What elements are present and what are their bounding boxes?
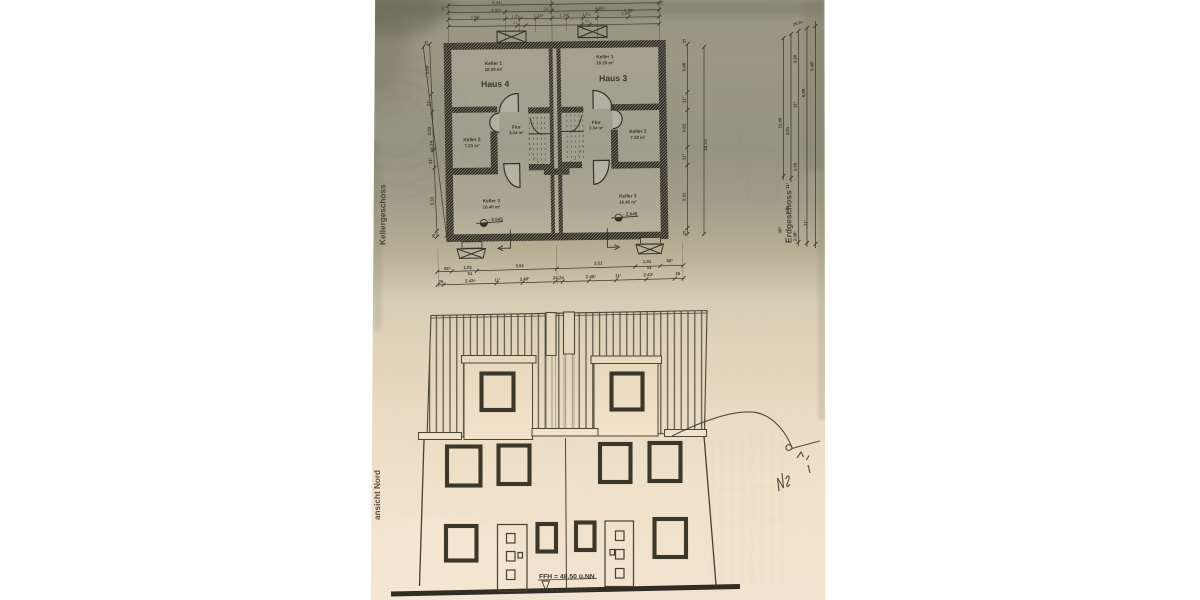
svg-text:11¹: 11¹: [792, 101, 797, 108]
svg-text:18.28 m²: 18.28 m²: [485, 67, 503, 72]
svg-text:3.31: 3.31: [429, 196, 434, 206]
svg-text:11¹: 11¹: [428, 157, 433, 164]
svg-text:Flur: Flur: [592, 120, 601, 125]
svg-text:3.08⁵: 3.08⁵: [470, 15, 480, 20]
svg-text:7.23 m²: 7.23 m²: [464, 143, 480, 148]
svg-text:3.51: 3.51: [594, 261, 603, 266]
svg-text:3.31: 3.31: [681, 192, 686, 201]
svg-text:61: 61: [513, 21, 517, 25]
svg-text:24,24: 24,24: [543, 6, 555, 11]
svg-text:1.26: 1.26: [792, 162, 797, 171]
svg-text:2.40⁵: 2.40⁵: [586, 274, 597, 279]
svg-text:3.34 m²: 3.34 m²: [509, 130, 524, 135]
svg-text:11¹: 11¹: [681, 96, 686, 103]
svg-text:3.01: 3.01: [785, 126, 790, 135]
svg-text:51: 51: [468, 271, 473, 276]
svg-text:11¹: 11¹: [803, 219, 808, 226]
svg-text:2.43⁵: 2.43⁵: [465, 278, 476, 283]
svg-text:2.40¹: 2.40¹: [520, 276, 531, 281]
svg-text:25: 25: [439, 279, 445, 284]
svg-text:5: 5: [550, 0, 552, 4]
svg-text:25: 25: [682, 231, 686, 235]
svg-text:11¹: 11¹: [681, 153, 686, 160]
svg-text:Erdgeschoss: Erdgeschoss: [784, 190, 794, 243]
svg-text:3.26: 3.26: [792, 54, 797, 63]
svg-text:Haus 4: Haus 4: [481, 79, 510, 89]
svg-text:11¹: 11¹: [615, 273, 622, 278]
svg-text:24,24: 24,24: [553, 275, 565, 280]
svg-text:92⁵: 92⁵: [444, 266, 451, 271]
svg-text:11¹: 11¹: [785, 182, 790, 189]
svg-text:7.23 m²: 7.23 m²: [630, 135, 646, 140]
svg-text:3.04 m²: 3.04 m²: [589, 125, 604, 130]
svg-text:25: 25: [682, 39, 686, 43]
svg-text:3.01: 3.01: [681, 123, 686, 132]
svg-text:Haus 3: Haus 3: [599, 73, 628, 83]
svg-text:1.24¹: 1.24¹: [559, 12, 569, 17]
svg-text:Flur: Flur: [512, 124, 521, 129]
svg-text:16.40 m²: 16.40 m²: [619, 199, 637, 204]
svg-text:92²: 92²: [666, 258, 673, 263]
svg-text:25: 25: [675, 271, 681, 276]
svg-text:1.01: 1.01: [511, 14, 520, 19]
svg-text:1.24¹: 1.24¹: [533, 13, 543, 18]
svg-text:- 2.645: - 2.645: [623, 211, 638, 216]
svg-text:3.01: 3.01: [427, 126, 432, 136]
svg-text:25: 25: [424, 41, 428, 45]
svg-text:ansicht Nord: ansicht Nord: [373, 470, 382, 520]
svg-text:11.00: 11.00: [777, 117, 782, 128]
svg-text:51: 51: [647, 265, 652, 270]
svg-text:10.74: 10.74: [703, 139, 708, 151]
svg-text:5.48¹: 5.48¹: [809, 60, 814, 71]
svg-text:16.40 m²: 16.40 m²: [483, 204, 501, 209]
svg-text:11¹: 11¹: [426, 99, 431, 106]
svg-text:3.09⁵: 3.09⁵: [621, 11, 631, 16]
svg-text:4.90¹: 4.90¹: [491, 8, 502, 13]
svg-text:61: 61: [585, 19, 589, 23]
svg-text:3.51: 3.51: [515, 263, 524, 268]
svg-text:25: 25: [432, 234, 436, 238]
svg-text:30⁵: 30⁵: [777, 227, 782, 234]
svg-text:- 2.645: - 2.645: [489, 217, 504, 222]
svg-text:18.28 m²: 18.28 m²: [596, 60, 614, 65]
svg-text:1.01: 1.01: [582, 12, 591, 17]
svg-text:3.68: 3.68: [424, 65, 429, 75]
svg-text:6.89: 6.89: [801, 88, 806, 97]
svg-text:3.68: 3.68: [681, 62, 686, 71]
svg-text:1.01: 1.01: [643, 259, 652, 264]
svg-text:Kellergeschoss: Kellergeschoss: [379, 184, 388, 245]
svg-text:4.98¹: 4.98¹: [595, 6, 606, 11]
svg-text:11¹: 11¹: [494, 277, 501, 282]
svg-text:1.01: 1.01: [463, 265, 472, 270]
svg-text:5.44¹: 5.44¹: [492, 0, 503, 5]
svg-text:2.43¹: 2.43¹: [643, 272, 654, 277]
